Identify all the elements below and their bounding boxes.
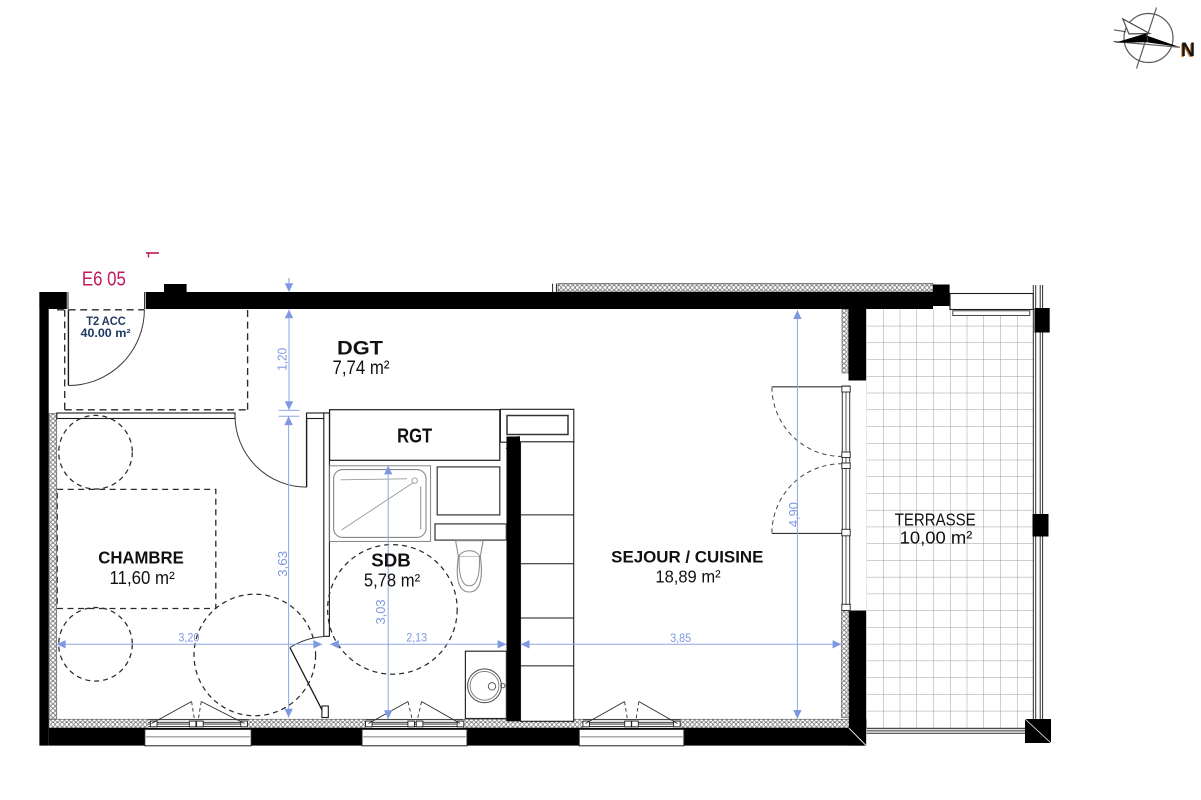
svg-text:TERRASSE: TERRASSE bbox=[895, 509, 976, 529]
svg-text:18,89 m²: 18,89 m² bbox=[655, 567, 720, 587]
svg-text:E6 05: E6 05 bbox=[82, 269, 126, 291]
svg-text:4,90: 4,90 bbox=[787, 502, 801, 527]
svg-text:10,00 m²: 10,00 m² bbox=[900, 527, 973, 547]
svg-text:DGT: DGT bbox=[337, 338, 383, 360]
svg-text:CHAMBRE: CHAMBRE bbox=[98, 548, 184, 568]
svg-text:3,20: 3,20 bbox=[178, 630, 199, 644]
svg-text:5,78 m²: 5,78 m² bbox=[364, 570, 420, 590]
svg-text:7,74 m²: 7,74 m² bbox=[333, 358, 390, 379]
svg-text:3,63: 3,63 bbox=[276, 551, 290, 577]
svg-text:SDB: SDB bbox=[371, 549, 410, 570]
svg-text:RGT: RGT bbox=[397, 426, 432, 448]
svg-text:3,85: 3,85 bbox=[670, 631, 691, 645]
svg-text:3,03: 3,03 bbox=[374, 599, 388, 624]
svg-text:N: N bbox=[1181, 39, 1195, 61]
svg-text:2,13: 2,13 bbox=[406, 630, 427, 644]
svg-text:1,20: 1,20 bbox=[276, 348, 290, 371]
svg-text:40.00 m²: 40.00 m² bbox=[81, 327, 131, 340]
svg-text:11,60 m²: 11,60 m² bbox=[110, 568, 175, 588]
svg-text:SEJOUR / CUISINE: SEJOUR / CUISINE bbox=[611, 547, 763, 566]
